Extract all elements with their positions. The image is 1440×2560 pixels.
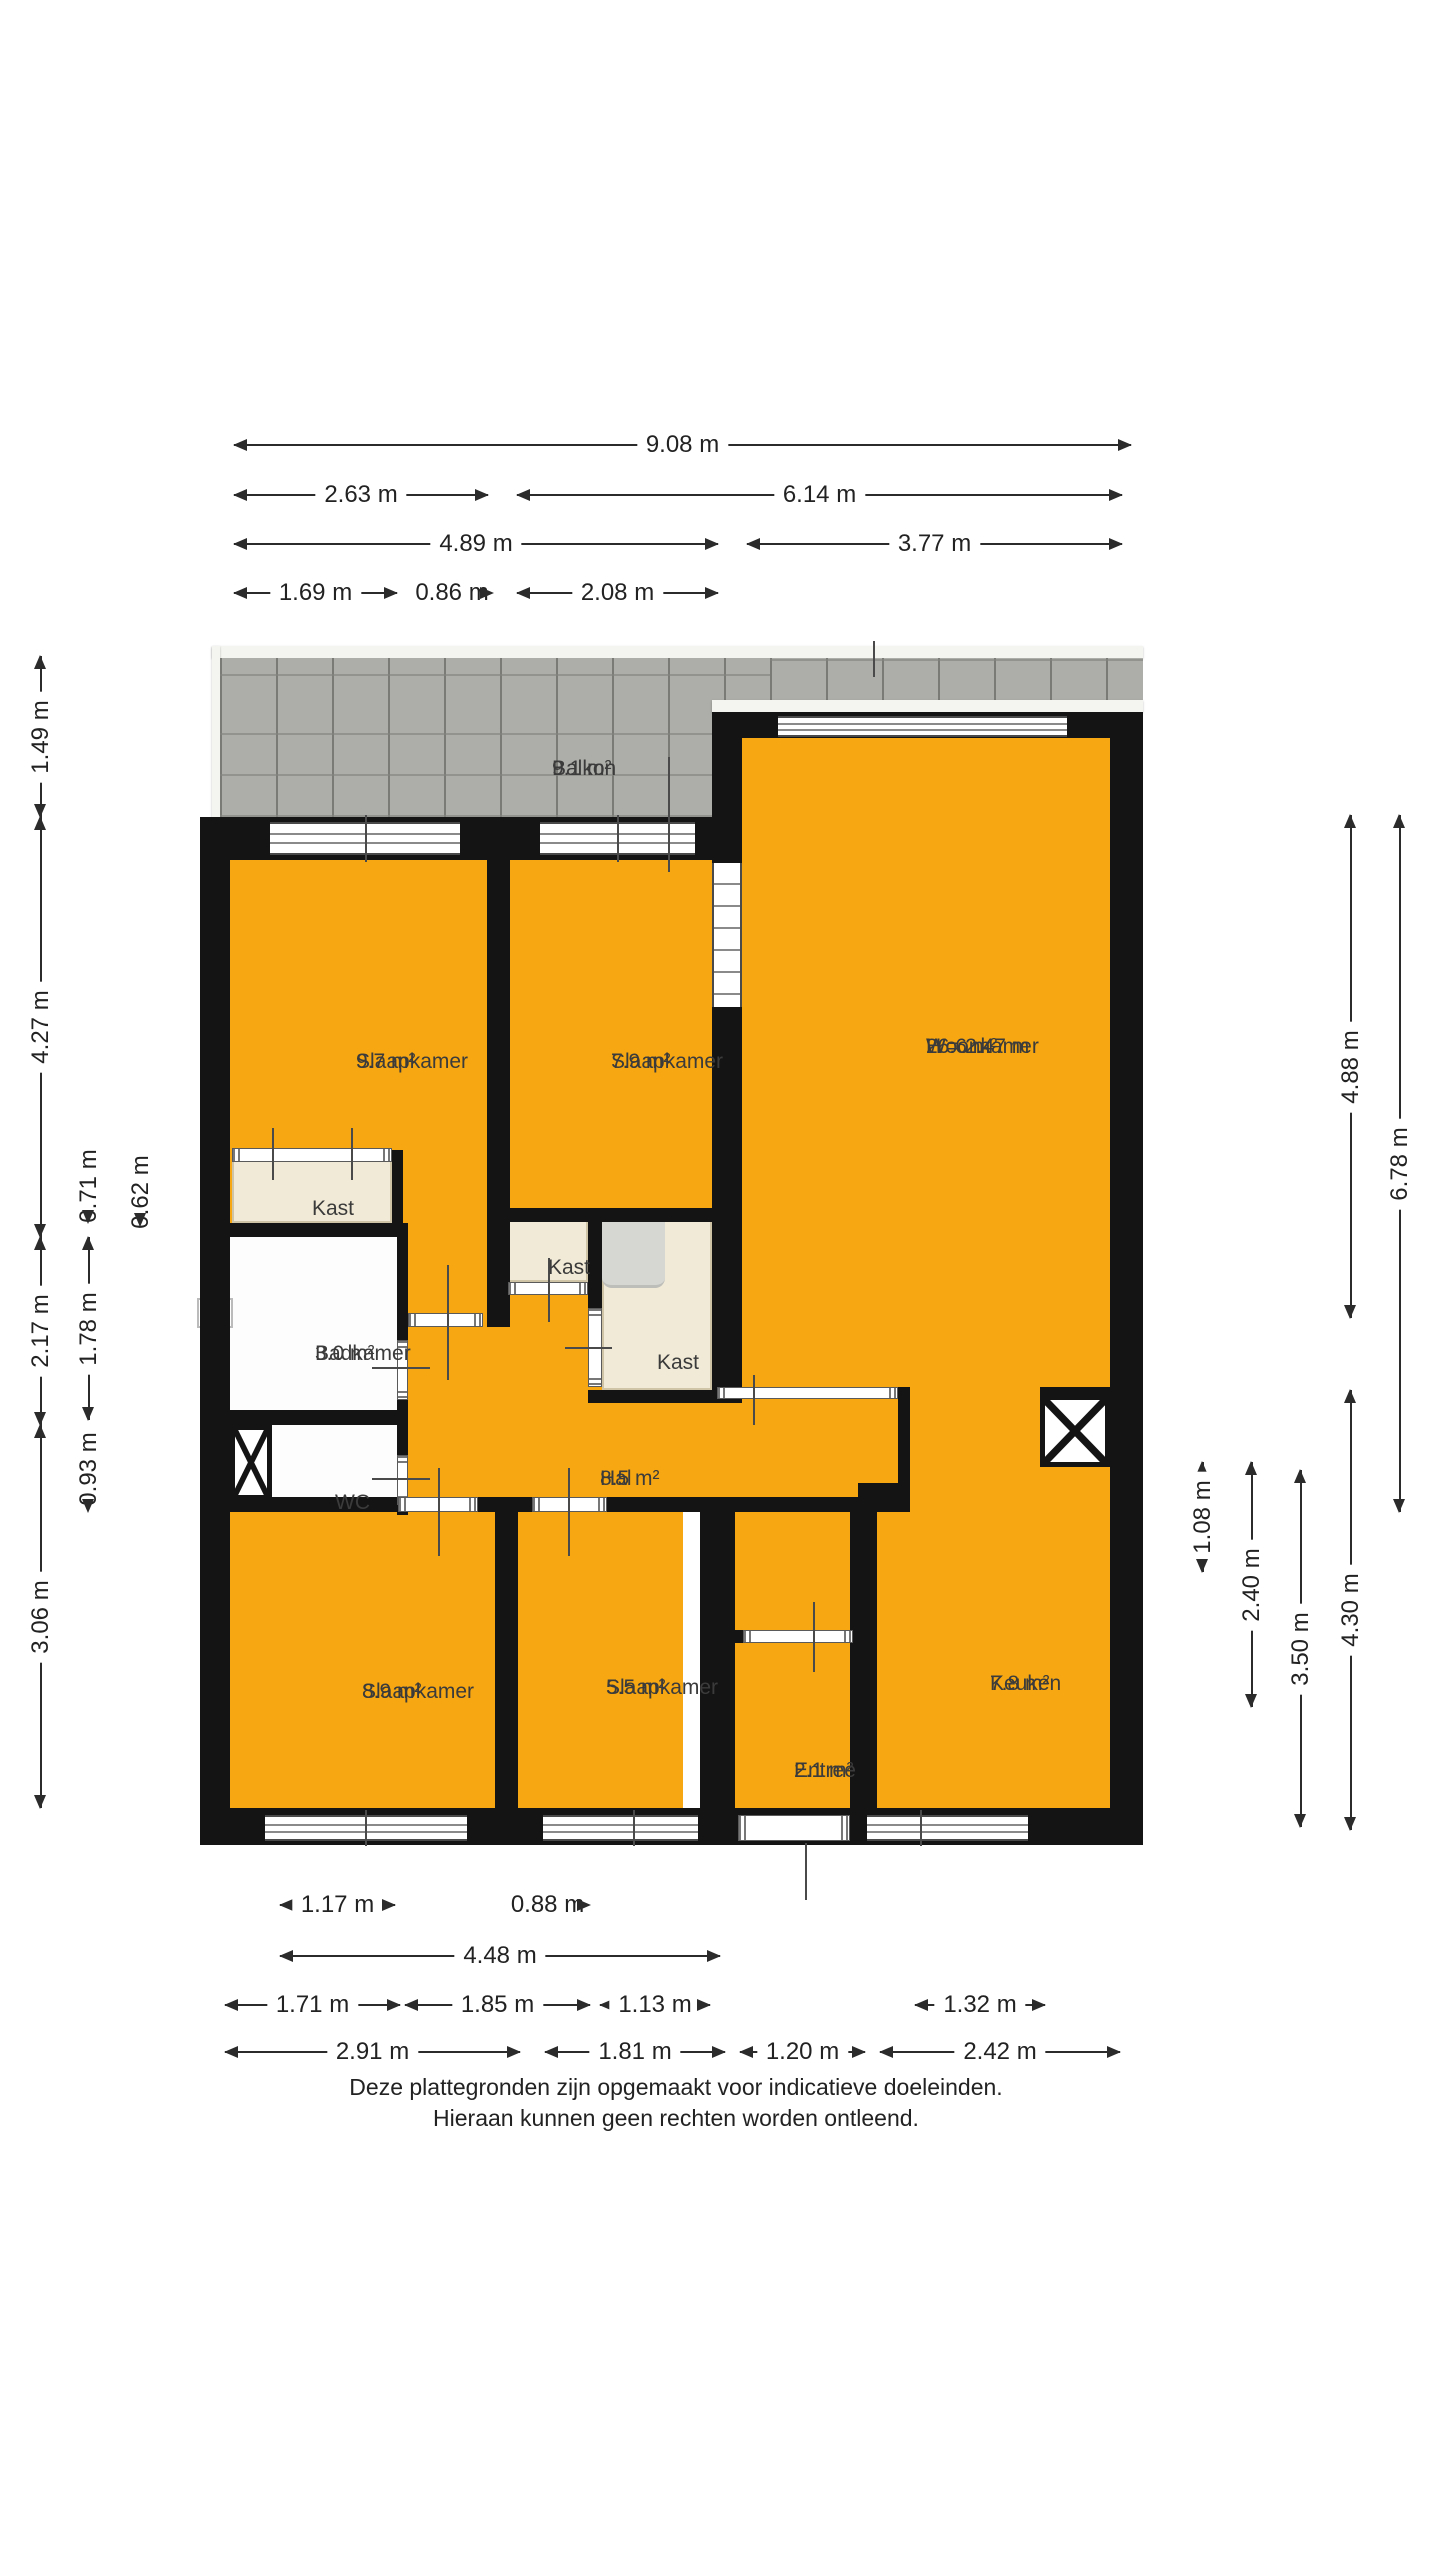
dimension-top-4a: 1.69 m: [234, 592, 397, 594]
dimension-label: 2.91 m: [327, 2038, 418, 2066]
dimension-left-kast: 0.71 m: [88, 1148, 90, 1223]
dimension-label: 3.77 m: [889, 530, 980, 558]
dimension-bottom-1b: 0.88 m: [505, 1904, 590, 1906]
dimension-left-wc: 0.93 m: [88, 1425, 90, 1512]
dimension-left-onder: 3.06 m: [40, 1425, 42, 1808]
dimension-bottom-4a: 2.91 m: [225, 2051, 520, 2053]
dimension-label: 1.17 m: [292, 1891, 383, 1919]
dimension-label: 1.85 m: [452, 1991, 543, 2019]
dimension-bottom-3d: 1.32 m: [915, 2004, 1045, 2006]
dimension-right-woonkamer: 4.88 m: [1350, 815, 1352, 1318]
dimension-label: 1.81 m: [589, 2038, 680, 2066]
dimension-label: 0.86 m: [406, 579, 497, 607]
dimension-label: 0.88 m: [502, 1891, 593, 1919]
dimension-label: 1.49 m: [27, 691, 55, 782]
dimension-bottom-3b: 1.85 m: [405, 2004, 590, 2006]
dimension-left-badkamer-in: 1.78 m: [88, 1237, 90, 1420]
dimension-bottom-4b: 1.81 m: [545, 2051, 725, 2053]
floorplan-canvas: Balkon 9.1 m² Slaapkamer 9.7 m² Slaapkam…: [0, 0, 1440, 2560]
dimension-label: 1.69 m: [270, 579, 361, 607]
dimension-left-balkon: 1.49 m: [40, 656, 42, 817]
dimension-right-2: 2.40 m: [1251, 1462, 1253, 1707]
dimension-top-left-2: 2.63 m: [234, 494, 488, 496]
dimension-top-4b: 0.86 m: [411, 592, 493, 594]
dimension-label: 1.32 m: [934, 1991, 1025, 2019]
dimension-top-total: 9.08 m: [234, 444, 1131, 446]
dimension-label: 6.78 m: [1386, 1118, 1414, 1209]
dimension-label: 6.14 m: [774, 481, 865, 509]
dimension-top-right-2: 6.14 m: [517, 494, 1122, 496]
dimension-label: 4.27 m: [27, 981, 55, 1072]
dimension-bottom-4d: 2.42 m: [880, 2051, 1120, 2053]
dimension-label: 1.08 m: [1189, 1471, 1217, 1562]
dimension-label: 2.42 m: [954, 2038, 1045, 2066]
dimension-label: 4.89 m: [430, 530, 521, 558]
dimension-right-keuken: 4.30 m: [1350, 1390, 1352, 1830]
dimension-label: 0.62 m: [127, 1146, 155, 1237]
dimension-label: 4.30 m: [1337, 1564, 1365, 1655]
dimension-top-left-3: 4.89 m: [234, 543, 718, 545]
dimension-label: 0.71 m: [75, 1140, 103, 1231]
dimension-bottom-2: 4.48 m: [280, 1955, 720, 1957]
dimension-label: 3.06 m: [27, 1571, 55, 1662]
dimension-label: 1.71 m: [267, 1991, 358, 2019]
dimension-label: 9.08 m: [637, 431, 728, 459]
dimension-label: 4.48 m: [454, 1942, 545, 1970]
dimension-bottom-3a: 1.71 m: [225, 2004, 400, 2006]
dimension-layer: 9.08 m2.63 m6.14 m4.89 m3.77 m1.69 m0.86…: [0, 0, 1440, 2560]
dimension-label: 4.88 m: [1337, 1021, 1365, 1112]
dimension-label: 0.93 m: [75, 1423, 103, 1514]
dimension-label: 1.78 m: [75, 1283, 103, 1374]
dimension-left-kast-diep: 0.62 m: [140, 1158, 142, 1226]
dimension-label: 2.17 m: [27, 1285, 55, 1376]
dimension-left-badkamer: 2.17 m: [40, 1237, 42, 1425]
disclaimer-line2: Hieraan kunnen geen rechten worden ontle…: [349, 2103, 1002, 2134]
dimension-label: 1.13 m: [609, 1991, 700, 2019]
dimension-right-totaal: 6.78 m: [1399, 815, 1401, 1512]
disclaimer-text: Deze plattegronden zijn opgemaakt voor i…: [349, 2072, 1002, 2134]
dimension-label: 2.40 m: [1238, 1539, 1266, 1630]
dimension-bottom-4c: 1.20 m: [740, 2051, 865, 2053]
dimension-left-slaapkamer: 4.27 m: [40, 817, 42, 1237]
dimension-right-1: 1.08 m: [1202, 1462, 1204, 1572]
dimension-right-3: 3.50 m: [1300, 1470, 1302, 1827]
dimension-top-4c: 2.08 m: [517, 592, 718, 594]
dimension-label: 2.63 m: [315, 481, 406, 509]
dimension-bottom-1a: 1.17 m: [280, 1904, 395, 1906]
dimension-bottom-3c: 1.13 m: [600, 2004, 710, 2006]
dimension-top-right-3: 3.77 m: [747, 543, 1122, 545]
dimension-label: 3.50 m: [1287, 1603, 1315, 1694]
dimension-label: 1.20 m: [757, 2038, 848, 2066]
dimension-label: 2.08 m: [572, 579, 663, 607]
disclaimer-line1: Deze plattegronden zijn opgemaakt voor i…: [349, 2072, 1002, 2103]
